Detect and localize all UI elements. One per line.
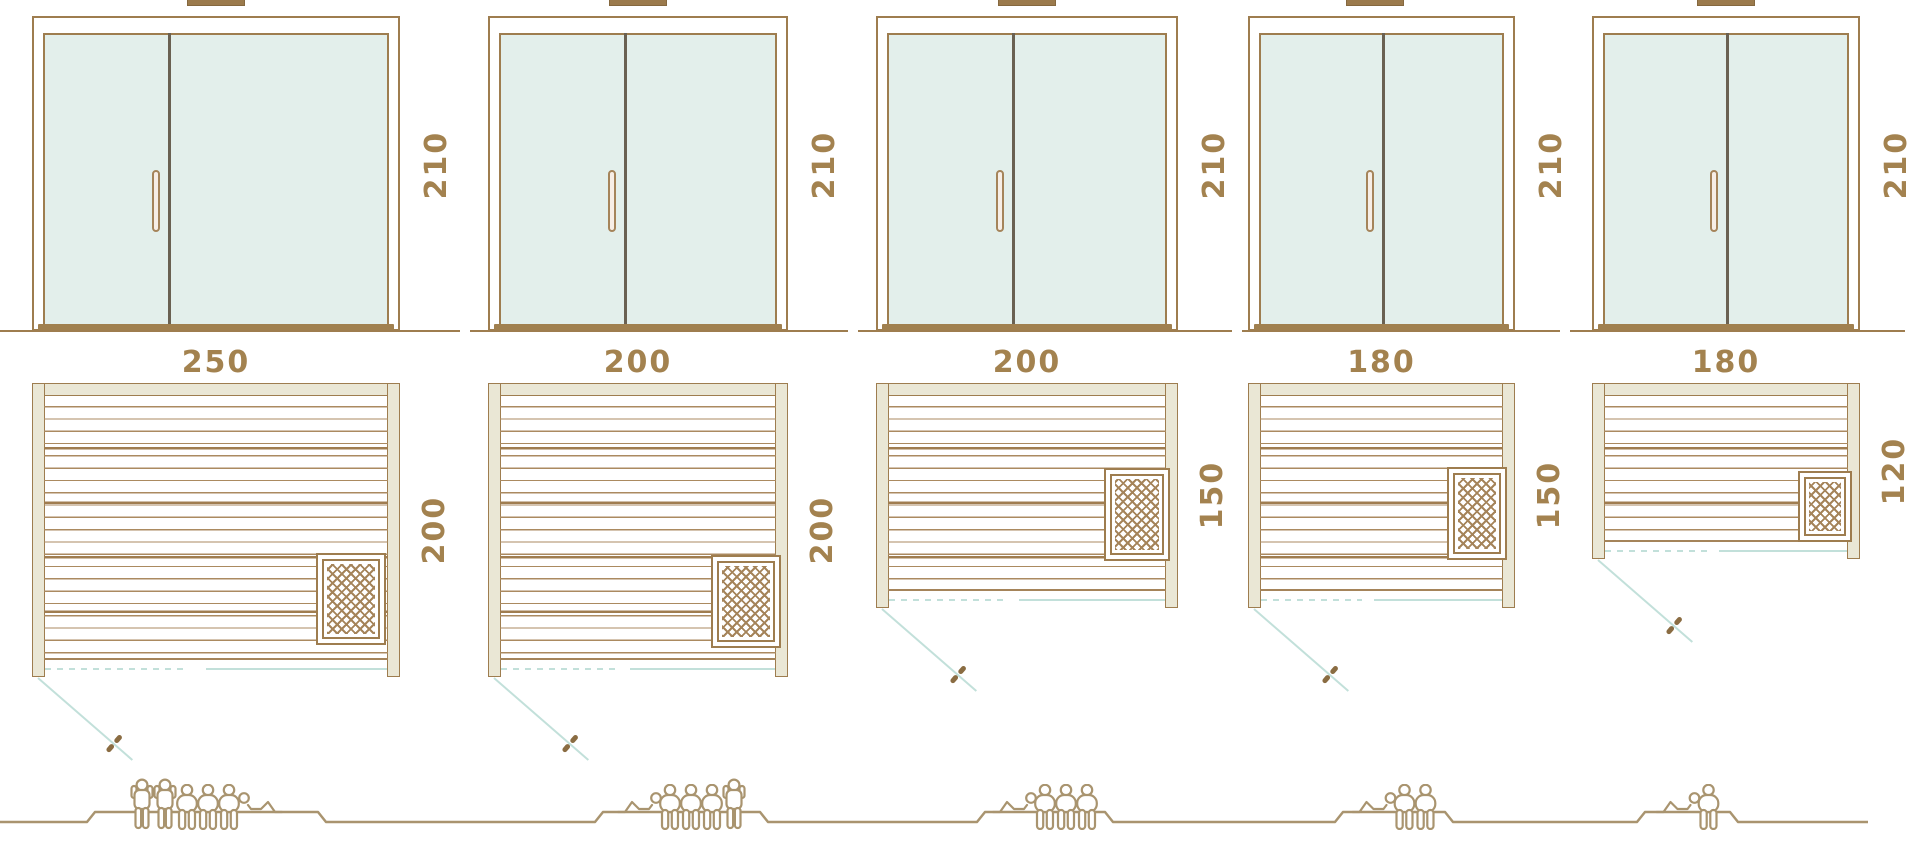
person-standing-icon	[132, 780, 153, 828]
door-glass-line	[1374, 599, 1502, 601]
ground-line	[0, 330, 460, 332]
floor-plan	[876, 383, 1178, 608]
elevation-height-label: 210	[1882, 125, 1912, 205]
heater	[711, 555, 781, 648]
plan-door-handle-icon	[1321, 665, 1339, 685]
heater-grill-icon	[1804, 477, 1846, 536]
plan-depth-label: 200	[420, 490, 450, 570]
door-handle	[1710, 170, 1718, 232]
person-seated-icon	[660, 785, 680, 829]
glass-doors	[887, 33, 1167, 329]
elevation-height-label: 210	[810, 125, 840, 205]
heater-grill-icon	[322, 559, 380, 639]
person-seated-icon	[1699, 785, 1719, 829]
person-lying-icon	[239, 793, 282, 812]
sauna-unit-180x150: 210 180 150	[1242, 0, 1560, 856]
heater	[1798, 471, 1852, 542]
plan-door-handle-icon	[949, 665, 967, 685]
door-glass-line	[1019, 599, 1165, 601]
door-glass-line	[630, 668, 775, 670]
roof-vent-cap	[998, 0, 1056, 6]
door-glass-line	[1719, 550, 1847, 552]
plan-door-handle-icon	[1665, 616, 1683, 636]
roof-vent-cap	[1346, 0, 1404, 6]
sauna-unit-200x150: 210 200 150	[858, 0, 1232, 856]
door-opening-dashed-line	[1261, 599, 1362, 601]
elevation-height-label: 210	[1200, 125, 1230, 205]
person-seated-icon	[219, 785, 239, 829]
plan-width-label: 200	[488, 346, 788, 380]
plan-depth-label: 120	[1880, 431, 1910, 511]
person-standing-icon	[155, 780, 176, 828]
ground-line	[858, 330, 1232, 332]
person-seated-icon	[1035, 785, 1055, 829]
plan-depth-label: 150	[1198, 455, 1228, 535]
sauna-unit-250x200: 210 250 200	[0, 0, 460, 856]
person-seated-icon	[1077, 785, 1097, 829]
plan-post-right	[387, 383, 400, 677]
door-handle	[996, 170, 1004, 232]
roof-vent-cap	[1697, 0, 1755, 6]
sauna-sizes-diagram: 210 250 200 210 200	[0, 0, 1920, 856]
front-elevation	[876, 16, 1178, 331]
person-seated-icon	[702, 785, 722, 829]
door-swing-line	[881, 608, 977, 692]
person-seated-icon	[1416, 785, 1436, 829]
person-seated-icon	[1056, 785, 1076, 829]
person-seated-icon	[1395, 785, 1415, 829]
roof-vent-cap	[609, 0, 667, 6]
door-divider	[624, 33, 627, 329]
door-divider	[168, 33, 171, 329]
front-elevation	[1592, 16, 1860, 331]
floor-plan	[1592, 383, 1860, 559]
capacity-figures	[0, 740, 1920, 856]
ground-line	[1242, 330, 1560, 332]
plan-depth-label: 200	[808, 490, 838, 570]
door-handle	[152, 170, 160, 232]
door-divider	[1382, 33, 1385, 329]
heater-grill-icon	[717, 561, 775, 642]
person-lying-icon	[618, 793, 661, 812]
door-handle	[608, 170, 616, 232]
person-lying-icon	[1353, 793, 1396, 812]
front-elevation	[488, 16, 788, 331]
door-opening-dashed-line	[45, 668, 189, 670]
heater	[316, 553, 386, 645]
heater	[1104, 468, 1170, 561]
roof-vent-cap	[187, 0, 245, 6]
glass-doors	[499, 33, 777, 329]
door-divider	[1012, 33, 1015, 329]
ground-line	[1570, 330, 1905, 332]
door-divider	[1726, 33, 1729, 329]
ground-line	[470, 330, 848, 332]
front-elevation	[32, 16, 400, 331]
floor-plan	[488, 383, 788, 677]
plan-width-label: 200	[876, 346, 1178, 380]
door-opening-dashed-line	[1605, 550, 1707, 552]
person-lying-icon	[1657, 793, 1700, 812]
plan-width-label: 180	[1248, 346, 1515, 380]
door-swing-line	[1253, 608, 1349, 692]
heater-grill-icon	[1110, 474, 1164, 555]
elevation-height-label: 210	[422, 125, 452, 205]
person-lying-icon	[993, 793, 1036, 812]
person-seated-icon	[681, 785, 701, 829]
person-seated-icon	[198, 785, 218, 829]
door-glass-line	[206, 668, 387, 670]
sauna-unit-180x120: 210 180 120	[1570, 0, 1905, 856]
door-handle	[1366, 170, 1374, 232]
plan-width-label: 180	[1592, 346, 1860, 380]
door-swing-line	[1597, 559, 1693, 643]
ground-profile-line	[0, 812, 1868, 822]
door-opening-dashed-line	[889, 599, 1005, 601]
sauna-unit-200x200: 210 200 200	[470, 0, 848, 856]
front-elevation	[1248, 16, 1515, 331]
person-standing-icon	[724, 780, 745, 828]
person-seated-icon	[177, 785, 197, 829]
floor-plan	[32, 383, 400, 677]
plan-width-label: 250	[32, 346, 400, 380]
heater-grill-icon	[1453, 473, 1501, 554]
heater	[1447, 467, 1507, 560]
floor-plan	[1248, 383, 1515, 608]
glass-doors	[43, 33, 389, 329]
door-opening-dashed-line	[501, 668, 616, 670]
plan-depth-label: 150	[1535, 455, 1565, 535]
elevation-height-label: 210	[1537, 125, 1567, 205]
